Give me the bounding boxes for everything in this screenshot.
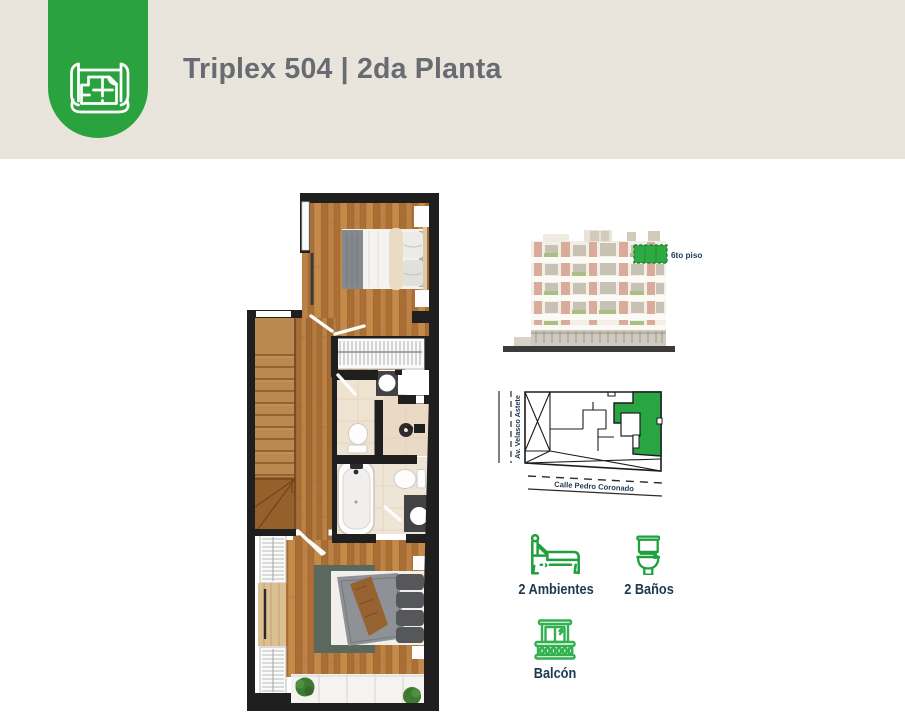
svg-text:6to piso: 6to piso <box>671 251 702 260</box>
svg-text:Av. Velasco Astete: Av. Velasco Astete <box>513 395 522 459</box>
